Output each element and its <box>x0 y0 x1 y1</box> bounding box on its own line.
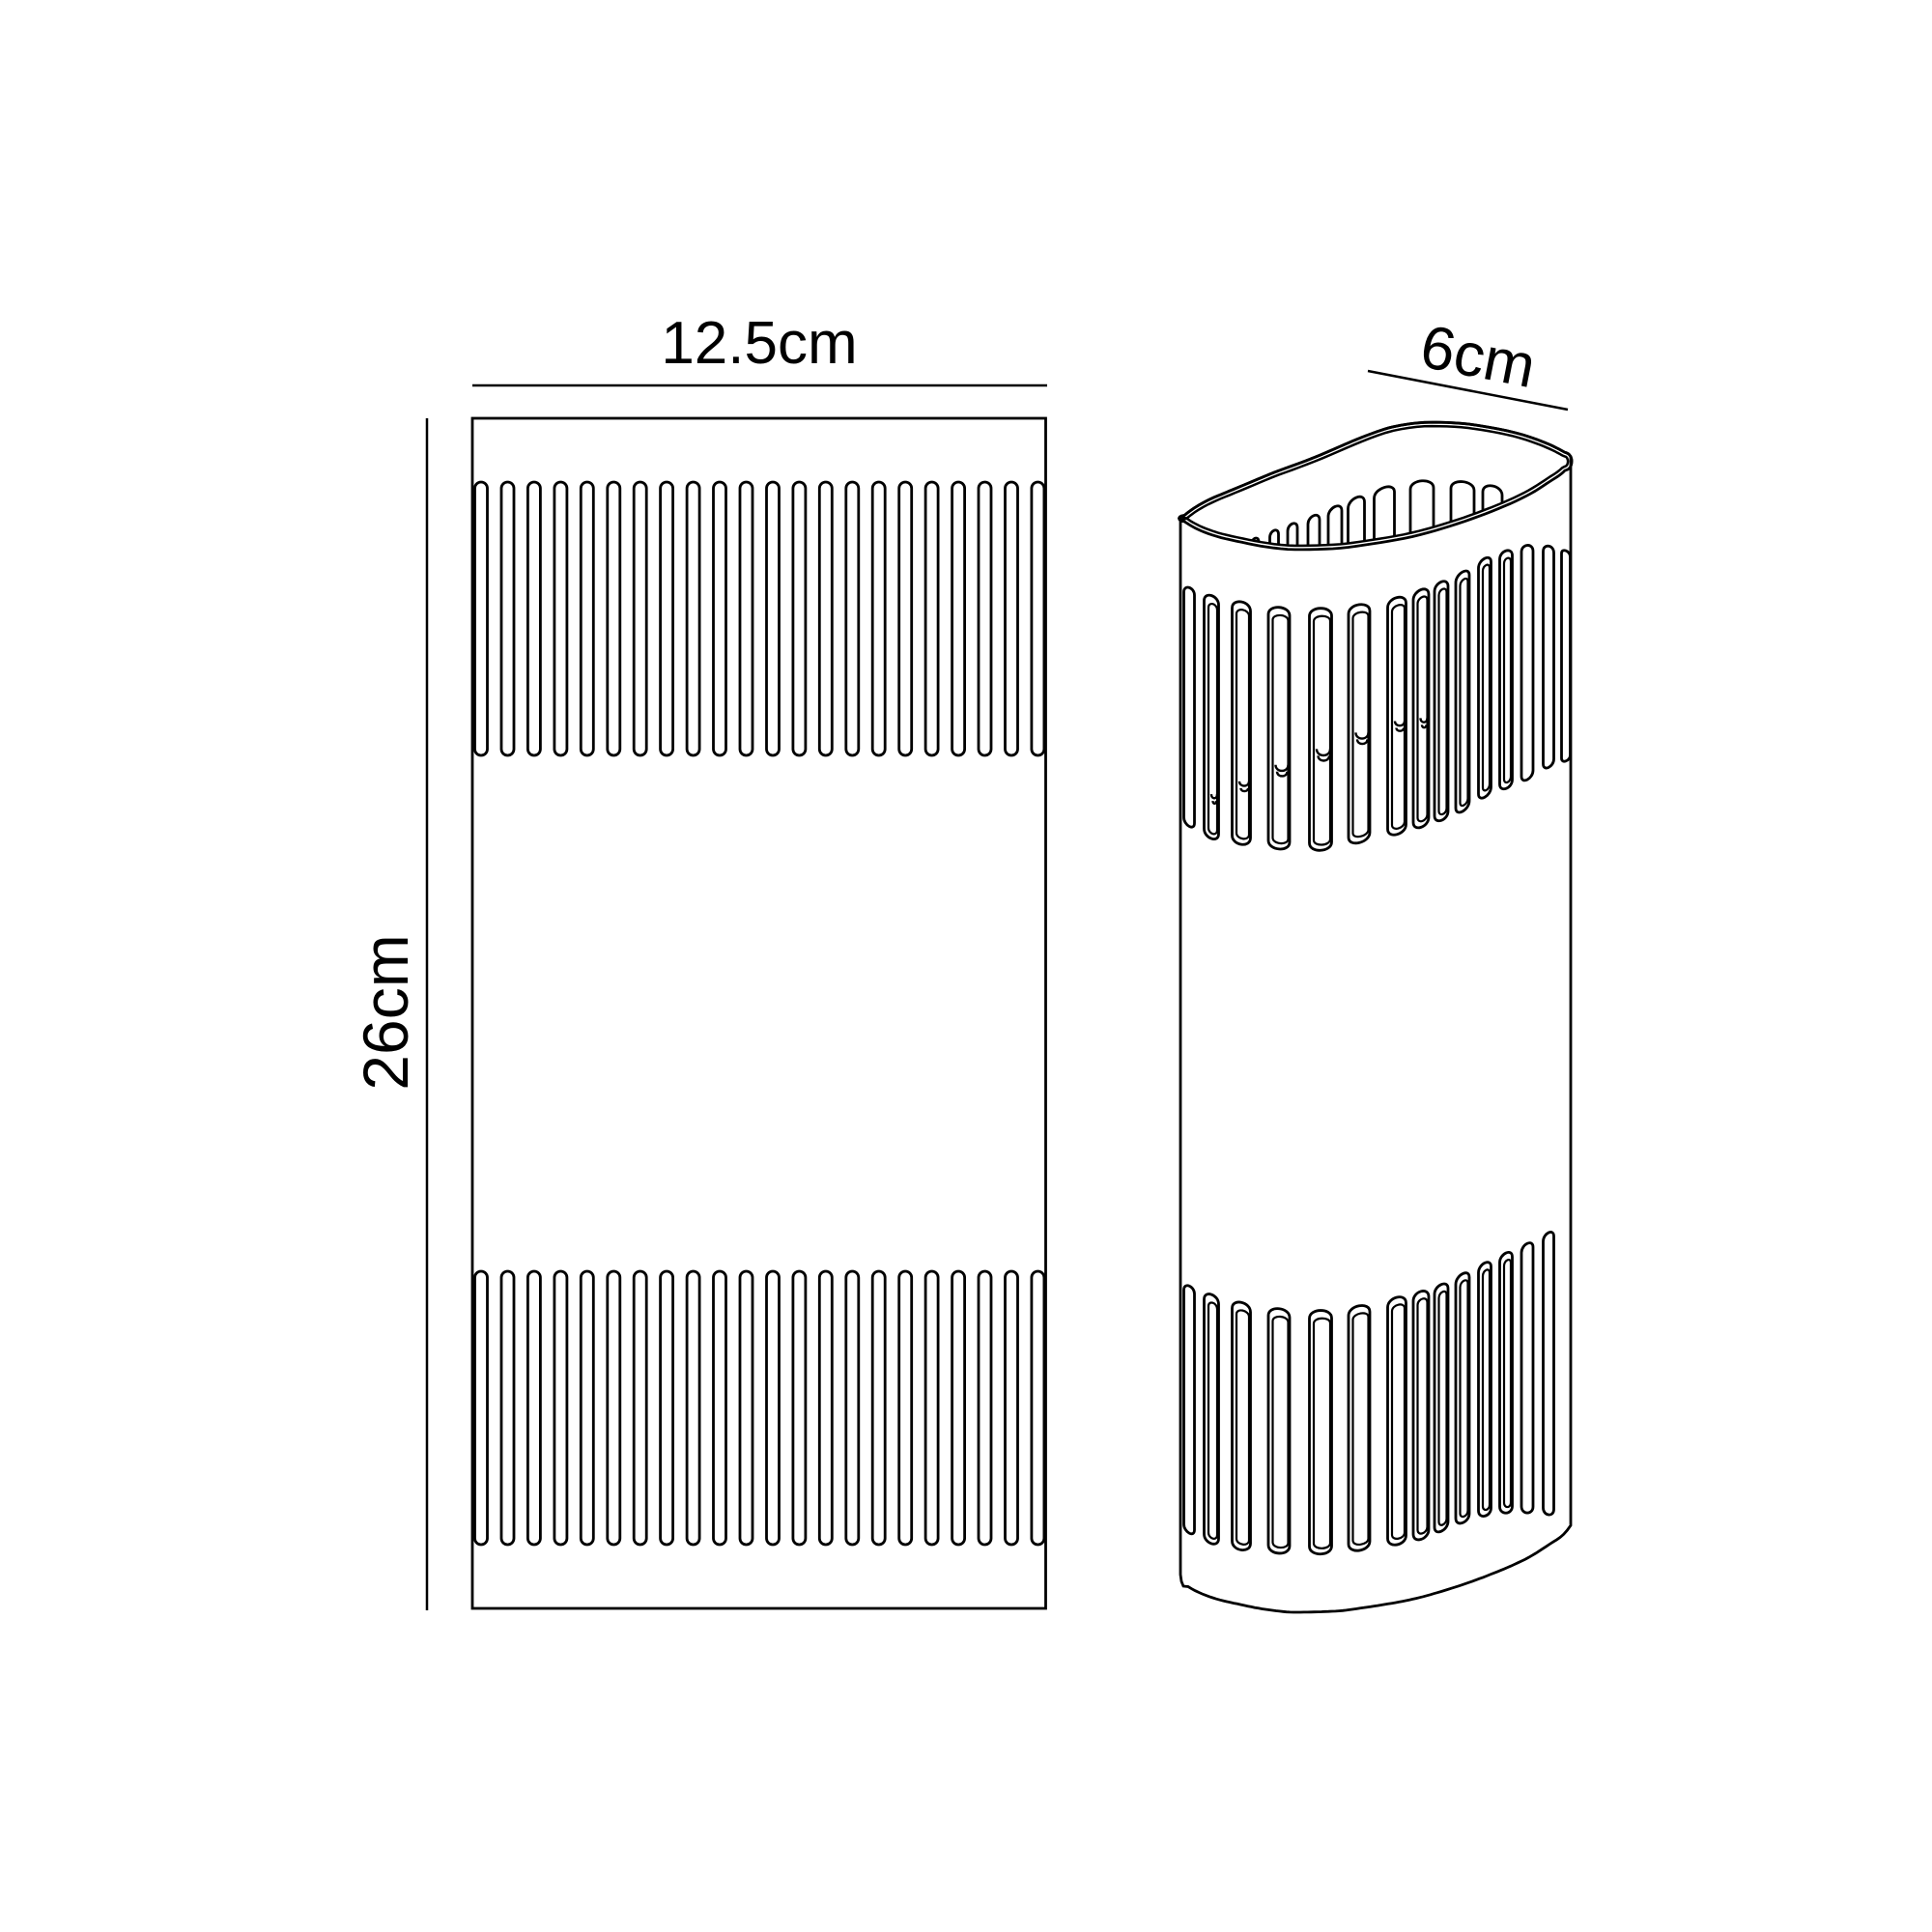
svg-text:26cm: 26cm <box>350 934 421 1090</box>
svg-text:12.5cm: 12.5cm <box>661 310 857 377</box>
